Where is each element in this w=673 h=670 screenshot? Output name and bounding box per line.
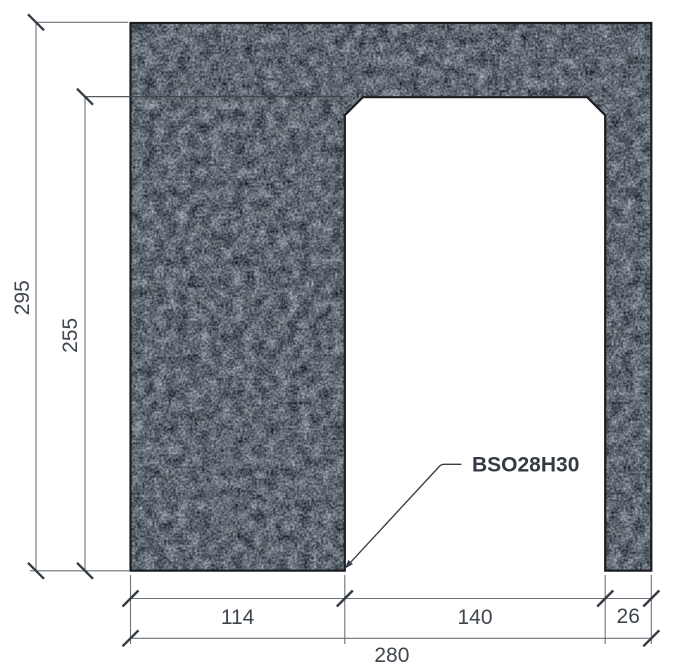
svg-text:114: 114 [221,606,255,629]
svg-text:255: 255 [59,318,82,353]
svg-text:140: 140 [457,606,492,629]
svg-text:26: 26 [617,605,640,628]
svg-text:295: 295 [11,280,34,315]
svg-text:280: 280 [374,644,409,667]
svg-text:BSO28H30: BSO28H30 [472,454,579,477]
